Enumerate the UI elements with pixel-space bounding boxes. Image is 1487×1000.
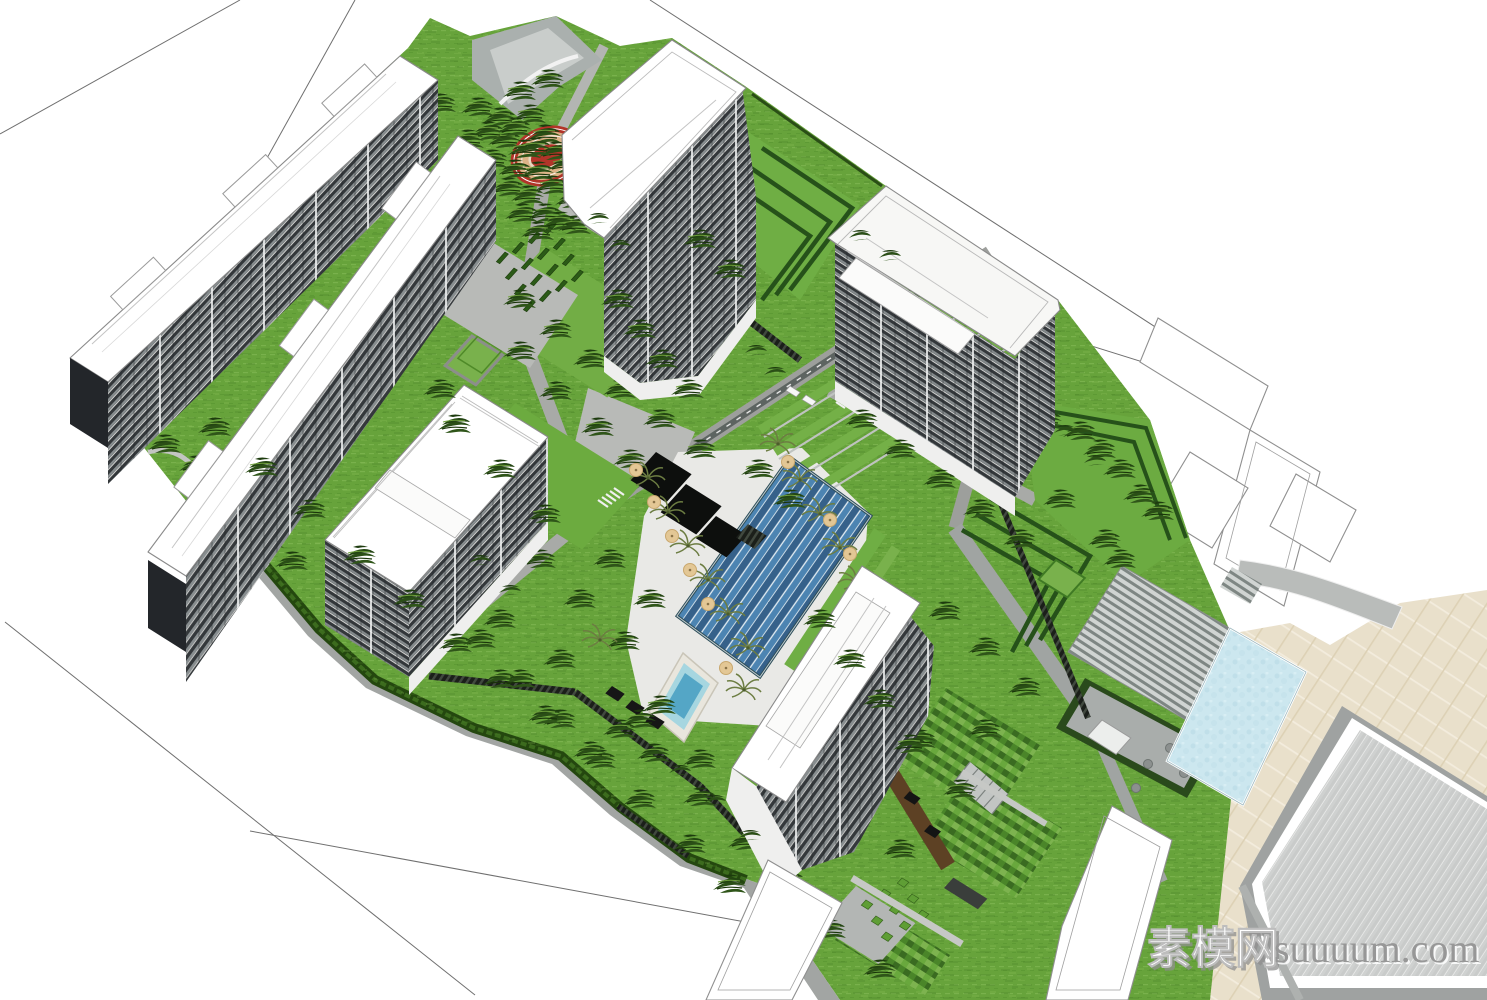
svg-text:素模网: 素模网 [1147, 924, 1279, 973]
svg-text:suuuum.com: suuuum.com [1274, 926, 1480, 971]
